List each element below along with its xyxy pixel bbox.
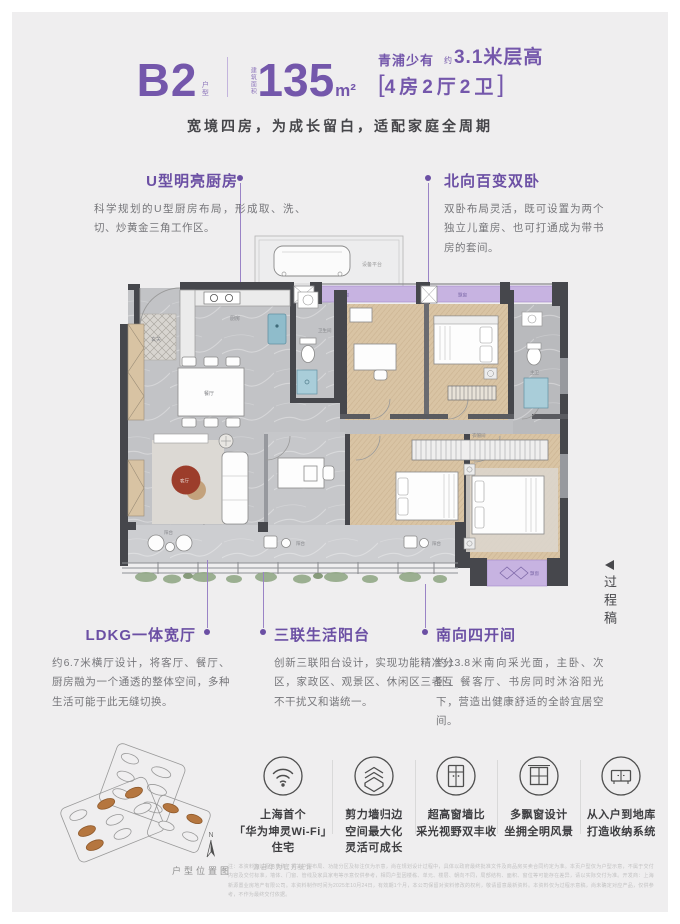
height-value: 3.1米层高 — [454, 47, 543, 68]
feature-shear-wall: 剪力墙归边 空间最大化 灵活可成长 — [333, 754, 414, 857]
header: B2 户型 建筑面积 135 m² 青浦少有 约3.1米层高 [ 4房2厅2卫 … — [12, 42, 668, 101]
callout-balcony-leader — [263, 572, 264, 628]
callout-balcony-title-box: 三联生活阳台 — [274, 624, 370, 645]
shear-wall-icon — [352, 754, 396, 798]
svg-text:主卫: 主卫 — [530, 369, 539, 375]
feature-wifi: 上海首个 「华为坤灵Wi-Fi」 住宅 源自华为官方统计 — [234, 754, 332, 871]
callout-kitchen-dot — [237, 175, 243, 181]
north-arrow-icon — [204, 839, 218, 859]
compass-label: N — [208, 832, 213, 839]
header-right: 青浦少有 约3.1米层高 [ 4房2厅2卫 ] — [378, 42, 543, 101]
master-bedroom-furniture — [464, 464, 558, 552]
feature-line: 住宅 — [234, 840, 332, 857]
feature-line: 空间最大化 — [345, 824, 403, 841]
plan-code-block: B2 户型 — [137, 60, 210, 101]
floorplan-svg: 设备平台 — [118, 228, 570, 612]
callout-ldkg-title: LDKG一体宽厅 — [86, 627, 197, 644]
feature-line: 采光视野双丰收 — [416, 824, 497, 841]
feature-line: 超高窗墙比 — [416, 807, 497, 824]
callout-ldkg-leader — [207, 560, 208, 628]
svg-text:厨房: 厨房 — [230, 315, 240, 322]
callout-ldkg-dot — [204, 629, 210, 635]
svg-text:餐厅: 餐厅 — [204, 390, 214, 397]
highlight-row: 青浦少有 约3.1米层高 — [378, 42, 543, 69]
poster-canvas: B2 户型 建筑面积 135 m² 青浦少有 约3.1米层高 [ 4房2厅2卫 … — [12, 12, 668, 912]
wifi-icon — [261, 754, 305, 798]
feature-line: 灵活可成长 — [345, 840, 403, 857]
callout-south-leader — [425, 584, 426, 628]
header-divider — [227, 57, 228, 97]
features-row: 上海首个 「华为坤灵Wi-Fi」 住宅 源自华为官方统计 剪力墙归边 空间最大化… — [234, 754, 662, 871]
callout-south-desc: 约13.8米南向采光面，主卧、次卧、餐客厅、书房同时沐浴阳光下，营造出健康舒适的… — [436, 654, 604, 732]
svg-text:阳台: 阳台 — [432, 540, 441, 547]
equipment-platform: 设备平台 — [255, 236, 403, 288]
subtitle: 宽境四房，为成长留白，适配家庭全周期 — [12, 116, 668, 136]
south-bedroom-furniture — [396, 472, 458, 520]
callout-balcony-title: 三联生活阳台 — [274, 627, 370, 644]
svg-text:设备平台: 设备平台 — [362, 261, 382, 268]
feature-line: 上海首个 — [234, 807, 332, 824]
plan-code: B2 — [137, 60, 198, 101]
feature-line: 剪力墙归边 — [345, 807, 403, 824]
svg-text:飘窗: 飘窗 — [530, 570, 539, 577]
layout-row: [ 4房2厅2卫 ] — [378, 71, 504, 99]
svg-text:飘窗: 飘窗 — [458, 292, 467, 299]
callout-south-title: 南向四开间 — [436, 627, 516, 644]
svg-text:卫生间: 卫生间 — [318, 327, 332, 334]
entry-label: 玄关 — [151, 336, 161, 343]
callout-south-title-box: 南向四开间 — [436, 624, 516, 645]
draft-note-text: 过程稿 — [600, 575, 619, 629]
callout-ldkg-desc: 约6.7米横厅设计，将客厅、餐厅、厨房融为一个通透的整体空间，多种生活可能于此无… — [52, 654, 230, 712]
callout-north-title-box: 北向百变双卧 — [444, 170, 540, 191]
callout-south-dot — [422, 629, 428, 635]
feature-line: 打造收纳系统 — [587, 824, 656, 841]
map-cluster-east — [146, 794, 212, 854]
map-caption: 户型位置图 — [172, 864, 232, 877]
feature-line: 坐拥全明风景 — [504, 824, 573, 841]
feature-line: 多飘窗设计 — [504, 807, 573, 824]
plan-code-suffix: 户型 — [199, 81, 209, 101]
area-unit: m² — [335, 81, 356, 101]
bracket-right: ] — [497, 71, 504, 99]
highlight-prefix: 青浦少有 — [378, 50, 434, 69]
plants — [135, 572, 447, 584]
area-label: 建筑面积 — [248, 67, 257, 101]
svg-text:客厅: 客厅 — [180, 478, 189, 485]
bracket-left: [ — [378, 71, 385, 99]
callout-kitchen-title-box: U型明亮厨房 — [92, 170, 238, 191]
height-approx: 约 — [444, 56, 453, 65]
compass: N — [204, 832, 218, 859]
arrow-left-icon — [605, 560, 614, 570]
bay-window-icon — [517, 754, 561, 798]
height-spec: 约3.1米层高 — [444, 42, 543, 69]
area-value: 135 — [257, 60, 334, 101]
poster-page: B2 户型 建筑面积 135 m² 青浦少有 约3.1米层高 [ 4房2厅2卫 … — [0, 0, 680, 924]
callout-balcony-desc: 创新三联阳台设计，实现功能精准分区，家政区、观景区、休闲区三者互不干扰又和谐统一… — [274, 654, 454, 712]
layout-spec: 4房2厅2卫 — [385, 72, 498, 99]
svg-text:衣帽间: 衣帽间 — [472, 432, 486, 439]
feature-line: 「华为坤灵Wi-Fi」 — [234, 824, 332, 841]
svg-text:阳台: 阳台 — [296, 540, 305, 547]
feature-tall-window: 超高窗墙比 采光视野双丰收 — [416, 754, 497, 840]
left-cabinets — [128, 324, 144, 516]
tall-window-icon — [434, 754, 478, 798]
storage-icon — [599, 754, 643, 798]
callout-balcony-dot — [260, 629, 266, 635]
feature-line: 从入户到地库 — [587, 807, 656, 824]
disclaimer-text: 注：本资料为过程示意稿，相关户型布局、功能分区及标注仅为示意，尚在规划设计过程中… — [228, 863, 654, 900]
feature-storage: 从入户到地库 打造收纳系统 — [581, 754, 662, 840]
area-block: 建筑面积 135 m² — [246, 60, 356, 101]
draft-note: 过程稿 — [600, 560, 619, 629]
callout-north-dot — [425, 175, 431, 181]
callout-kitchen-title: U型明亮厨房 — [146, 173, 238, 190]
feature-bay-window: 多飘窗设计 坐拥全明风景 — [498, 754, 579, 840]
svg-text:阳台: 阳台 — [164, 529, 173, 536]
callout-ldkg-title-box: LDKG一体宽厅 — [60, 624, 196, 645]
callout-north-title: 北向百变双卧 — [444, 173, 540, 190]
